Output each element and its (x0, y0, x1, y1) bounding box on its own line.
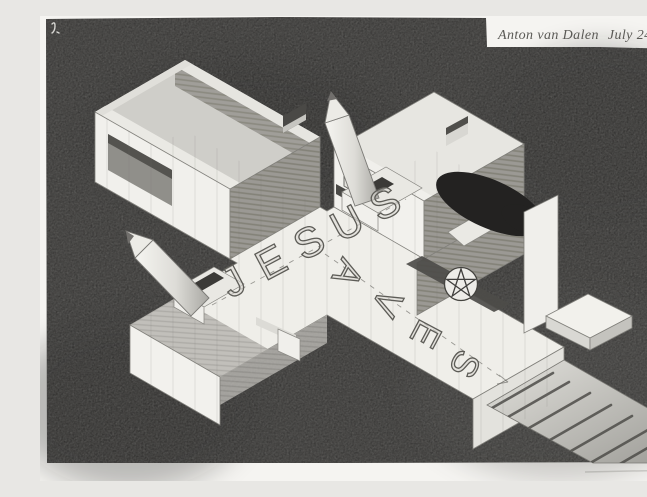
medallion-circle (445, 268, 478, 301)
artwork-scan: Anton van DalenJuly 24+25, '04 (40, 16, 647, 481)
signature: Anton van DalenJuly 24+25, '04 (497, 28, 647, 43)
date-inscription: July 24+25, '04 (608, 28, 647, 43)
artist-name: Anton van Dalen (497, 28, 599, 43)
drawing-canvas: Anton van DalenJuly 24+25, '04 (40, 16, 647, 481)
